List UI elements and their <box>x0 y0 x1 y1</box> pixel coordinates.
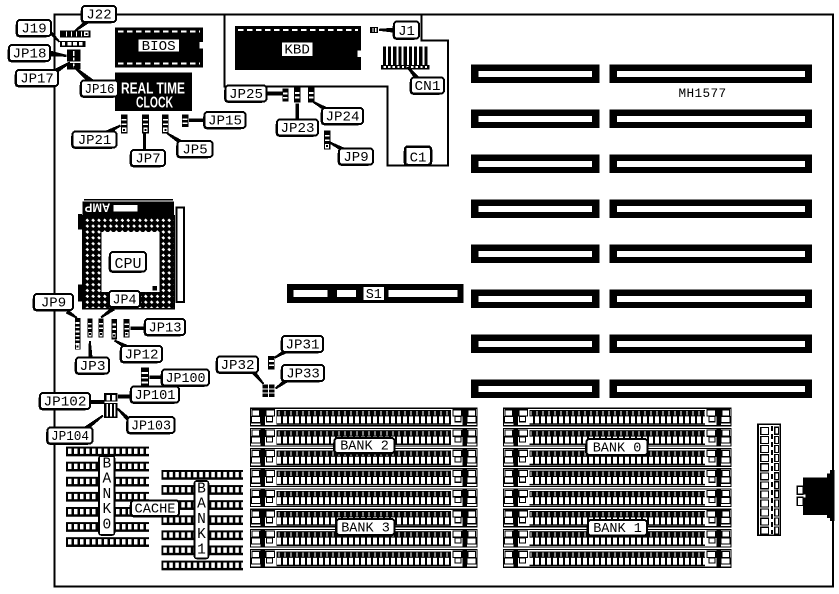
svg-text:JP100: JP100 <box>166 371 206 387</box>
svg-text:S1: S1 <box>366 288 382 303</box>
svg-text:N: N <box>102 487 111 503</box>
svg-text:JP17: JP17 <box>20 72 54 88</box>
svg-text:JP104: JP104 <box>51 429 89 445</box>
svg-text:JP3: JP3 <box>80 359 106 375</box>
svg-text:JP32: JP32 <box>221 358 255 374</box>
svg-text:BANK 1: BANK 1 <box>593 522 642 537</box>
svg-text:K: K <box>102 502 111 518</box>
svg-text:JP24: JP24 <box>326 110 360 126</box>
svg-text:K: K <box>197 527 206 543</box>
svg-text:AMP: AMP <box>84 200 110 212</box>
svg-text:JP33: JP33 <box>286 367 320 383</box>
svg-text:B: B <box>102 457 111 473</box>
svg-text:J19: J19 <box>21 22 46 38</box>
svg-text:JP9: JP9 <box>41 296 66 312</box>
svg-text:CLOCK: CLOCK <box>136 95 173 112</box>
svg-text:KBD: KBD <box>284 43 310 59</box>
svg-text:J1: J1 <box>398 24 415 40</box>
svg-text:A: A <box>102 472 111 488</box>
svg-text:JP18: JP18 <box>13 47 47 63</box>
svg-text:0: 0 <box>102 517 111 533</box>
svg-text:JP9: JP9 <box>343 150 368 166</box>
svg-text:JP16: JP16 <box>85 82 115 98</box>
svg-text:N: N <box>197 512 206 528</box>
svg-text:CPU: CPU <box>114 256 141 273</box>
svg-text:JP7: JP7 <box>135 152 160 168</box>
svg-text:A: A <box>197 497 206 513</box>
svg-text:JP12: JP12 <box>125 348 159 364</box>
svg-text:JP31: JP31 <box>286 338 320 354</box>
svg-text:JP103: JP103 <box>131 419 171 435</box>
svg-text:B: B <box>197 482 206 498</box>
svg-text:JP21: JP21 <box>78 133 112 149</box>
svg-text:BIOS: BIOS <box>142 39 176 55</box>
svg-text:J22: J22 <box>86 8 111 24</box>
svg-text:CN1: CN1 <box>415 79 441 95</box>
svg-text:BANK 3: BANK 3 <box>341 522 390 537</box>
svg-text:JP4: JP4 <box>113 293 137 309</box>
svg-text:JP13: JP13 <box>149 321 182 337</box>
svg-text:JP102: JP102 <box>44 395 87 411</box>
svg-text:JP23: JP23 <box>281 121 315 137</box>
svg-text:CACHE: CACHE <box>135 503 176 518</box>
svg-text:JP5: JP5 <box>182 143 207 159</box>
svg-text:JP101: JP101 <box>135 388 176 404</box>
svg-text:C1: C1 <box>410 151 427 167</box>
svg-text:JP15: JP15 <box>208 114 242 130</box>
svg-text:BANK 2: BANK 2 <box>340 440 389 455</box>
svg-text:1: 1 <box>197 542 206 558</box>
svg-text:MH1577: MH1577 <box>678 86 726 101</box>
svg-text:BANK 0: BANK 0 <box>593 442 642 457</box>
svg-text:JP25: JP25 <box>229 87 263 103</box>
